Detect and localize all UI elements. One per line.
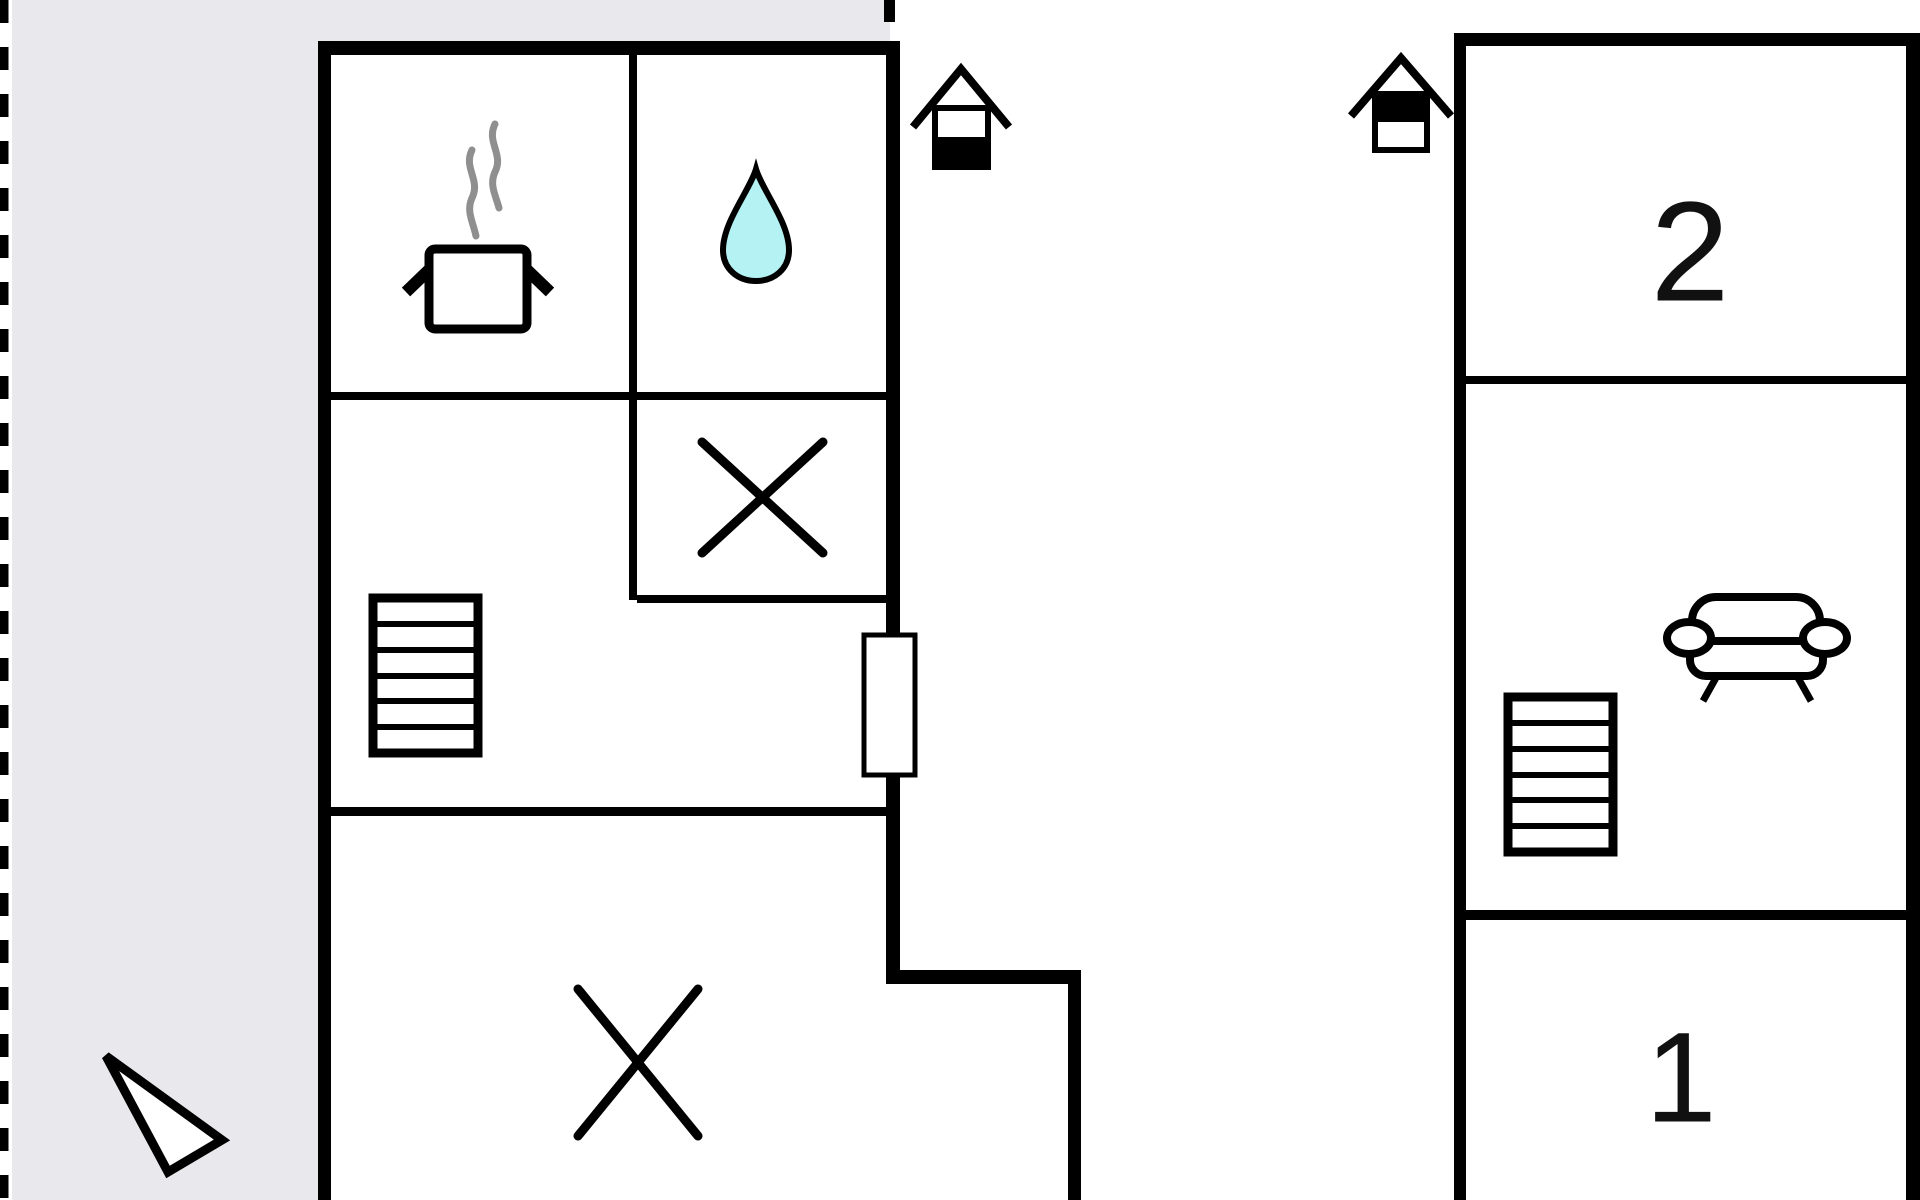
- wall-kitchen-bottom: [331, 392, 886, 400]
- wall-hall-bottom: [331, 807, 886, 816]
- sofa-armrest-right: [1803, 622, 1847, 654]
- floorplan-drawing: 2 1: [0, 0, 1920, 1200]
- filled-lower-half: [935, 137, 988, 167]
- wall-left: [318, 41, 331, 1200]
- filled-upper-half: [1375, 94, 1427, 122]
- room-2-label: 2: [1651, 173, 1730, 332]
- wall-step-vertical: [1068, 970, 1081, 1200]
- wall-below-room-2: [1466, 376, 1906, 384]
- pot-body: [429, 249, 527, 329]
- wall-kitchen-bath-divider: [629, 55, 637, 600]
- wall-left: [1454, 33, 1466, 1200]
- wall-right-upper: [886, 41, 900, 640]
- wall-right-lower: [886, 770, 900, 984]
- sofa-armrest-left: [1667, 622, 1711, 654]
- stairs-icon: [373, 598, 478, 753]
- outside-area-top: [12, 0, 890, 41]
- wall-toilet-bottom: [637, 595, 886, 603]
- wall-step-horizontal: [886, 970, 1081, 984]
- wall-right: [1906, 33, 1920, 1200]
- floorplan-page: 2 1: [0, 0, 1920, 1200]
- wall-stub: [884, 0, 895, 22]
- room-1-label: 1: [1645, 1007, 1716, 1150]
- stairs-icon: [1508, 697, 1613, 852]
- wall-above-room-1: [1466, 910, 1906, 920]
- wall-top: [1454, 33, 1920, 46]
- door-icon: [864, 635, 915, 775]
- wall-top: [318, 41, 900, 55]
- outside-area-left: [12, 0, 318, 1200]
